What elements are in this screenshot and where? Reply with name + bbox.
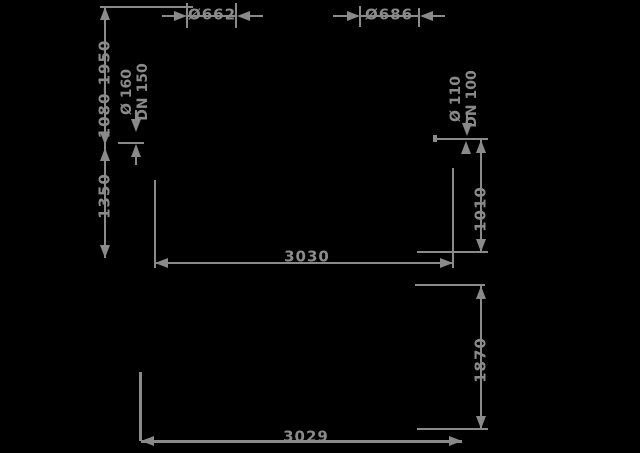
inlet-pipe-dn: DN 150 (135, 63, 151, 120)
arrowhead-right-icon (174, 11, 187, 21)
outlet-pipe-diameter: Ø 110 (448, 70, 464, 127)
technical-drawing-canvas: Ø662 Ø686 1080-1950 1350 Ø 160 DN 150 Ø … (0, 0, 640, 453)
extension-line (154, 180, 156, 268)
arrowhead-left-icon (237, 11, 250, 21)
arrowhead-up-icon (476, 140, 486, 153)
dim-width-upper-label: 3030 (284, 250, 330, 265)
dimension-tail-line (433, 15, 445, 17)
arrowhead-down-icon (100, 245, 110, 258)
arrowhead-right-icon (440, 258, 453, 268)
dim-width-lower-label: 3029 (283, 430, 329, 445)
dim-opening-diameter-label: Ø686 (365, 8, 413, 23)
arrowhead-down-icon (476, 416, 486, 429)
dimension-tail-line (333, 15, 347, 17)
outlet-pipe-dn: DN 100 (464, 70, 480, 127)
dim-inlet-height-label: 1010 (474, 186, 489, 232)
arrowhead-left-icon (420, 11, 433, 21)
arrowhead-up-icon (100, 148, 110, 161)
inlet-pipe-diameter: Ø 160 (119, 63, 135, 120)
reference-line (415, 284, 485, 286)
arrowhead-left-icon (155, 258, 168, 268)
dim-shaft-diameter-label: Ø662 (188, 8, 236, 23)
arrowhead-up-icon (131, 144, 141, 157)
dim-side-height-label: 1870 (474, 337, 489, 383)
arrowhead-right-icon (347, 11, 360, 21)
extension-line (139, 372, 142, 441)
dim-height-range-label: 1080-1950 (98, 40, 113, 139)
arrowhead-up-icon (476, 286, 486, 299)
arrowhead-down-icon (476, 239, 486, 252)
dim-body-height-label: 1350 (98, 173, 113, 219)
extension-line (452, 168, 454, 268)
leader-tail-line (135, 157, 137, 165)
arrowhead-right-icon (449, 436, 462, 446)
top-edge-line (100, 6, 193, 8)
arrowhead-down-icon (131, 119, 141, 132)
arrowhead-up-icon (461, 141, 471, 154)
inlet-pipe-label: Ø 160 DN 150 (119, 63, 151, 120)
dimension-tail-line (250, 15, 263, 17)
arrowhead-up-icon (100, 7, 110, 20)
outlet-pipe-label: Ø 110 DN 100 (448, 70, 480, 127)
arrowhead-left-icon (141, 436, 154, 446)
